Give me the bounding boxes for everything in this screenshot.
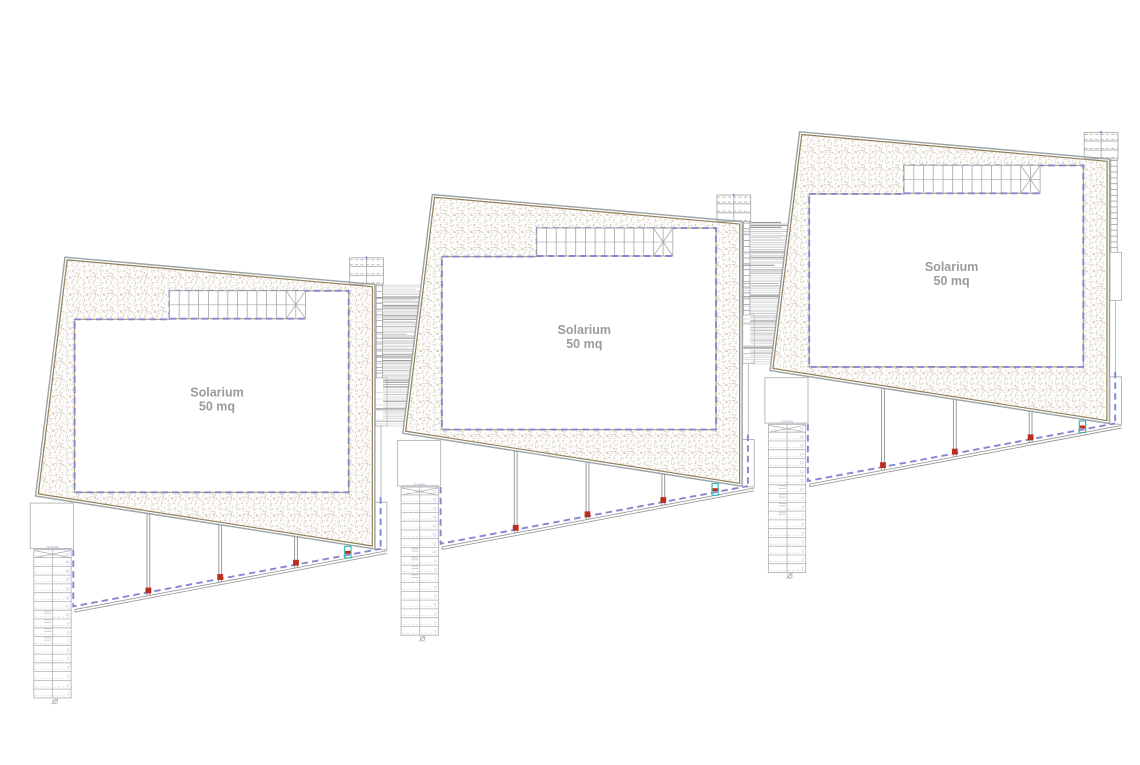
svg-text:6: 6 [435, 585, 437, 589]
svg-text:3: 3 [435, 612, 437, 616]
svg-text:10: 10 [65, 613, 69, 617]
svg-text:17: 17 [65, 553, 69, 557]
svg-text:17: 17 [433, 490, 437, 494]
svg-text:50 mq: 50 mq [566, 337, 602, 351]
svg-text:DOWN: DOWN [46, 545, 59, 550]
svg-text:11: 11 [800, 479, 804, 483]
svg-text:11: 11 [65, 604, 69, 608]
svg-text:6: 6 [67, 648, 69, 652]
svg-text:5: 5 [802, 531, 804, 535]
svg-text:10: 10 [800, 487, 804, 491]
svg-text:14: 14 [433, 515, 437, 519]
svg-text:17: 17 [800, 427, 804, 431]
svg-text:2: 2 [435, 620, 437, 624]
svg-text:10: 10 [433, 550, 437, 554]
svg-text:2: 2 [67, 683, 69, 687]
svg-text:16: 16 [800, 435, 804, 439]
svg-text:12: 12 [800, 470, 804, 474]
svg-text:14: 14 [65, 578, 69, 582]
svg-text:Solarium: Solarium [190, 386, 244, 400]
svg-text:9: 9 [67, 622, 69, 626]
svg-text:5: 5 [67, 657, 69, 661]
svg-text:4: 4 [802, 540, 804, 544]
svg-text:13: 13 [65, 587, 69, 591]
svg-text:9: 9 [802, 496, 804, 500]
svg-text:15: 15 [433, 506, 437, 510]
svg-text:16: 16 [433, 498, 437, 502]
svg-text:15: 15 [65, 569, 69, 573]
svg-text:2: 2 [802, 558, 804, 562]
svg-text:DOWN: DOWN [781, 419, 794, 424]
svg-text:DOWN: DOWN [414, 482, 427, 487]
svg-text:16: 16 [65, 560, 69, 564]
svg-text:13: 13 [800, 461, 804, 465]
svg-text:7: 7 [435, 576, 437, 580]
svg-text:7: 7 [802, 514, 804, 518]
svg-text:50 mq: 50 mq [934, 274, 970, 288]
svg-text:4: 4 [67, 665, 69, 669]
svg-text:4: 4 [435, 603, 437, 607]
svg-text:15: 15 [800, 444, 804, 448]
svg-text:7: 7 [67, 639, 69, 643]
svg-text:50 mq: 50 mq [199, 400, 235, 414]
svg-text:9: 9 [435, 559, 437, 563]
svg-text:11: 11 [433, 541, 437, 545]
svg-text:Solarium: Solarium [558, 323, 612, 337]
svg-text:3: 3 [67, 674, 69, 678]
svg-text:8: 8 [802, 505, 804, 509]
svg-text:1: 1 [435, 629, 437, 633]
svg-text:6: 6 [802, 523, 804, 527]
svg-text:1: 1 [802, 566, 804, 570]
svg-text:14: 14 [800, 452, 804, 456]
svg-text:Solarium: Solarium [925, 260, 979, 274]
svg-text:12: 12 [65, 595, 69, 599]
svg-text:12: 12 [433, 533, 437, 537]
svg-text:5: 5 [435, 594, 437, 598]
svg-text:1: 1 [67, 692, 69, 696]
svg-text:13: 13 [433, 524, 437, 528]
svg-text:8: 8 [67, 630, 69, 634]
svg-text:8: 8 [435, 568, 437, 572]
svg-text:3: 3 [802, 549, 804, 553]
